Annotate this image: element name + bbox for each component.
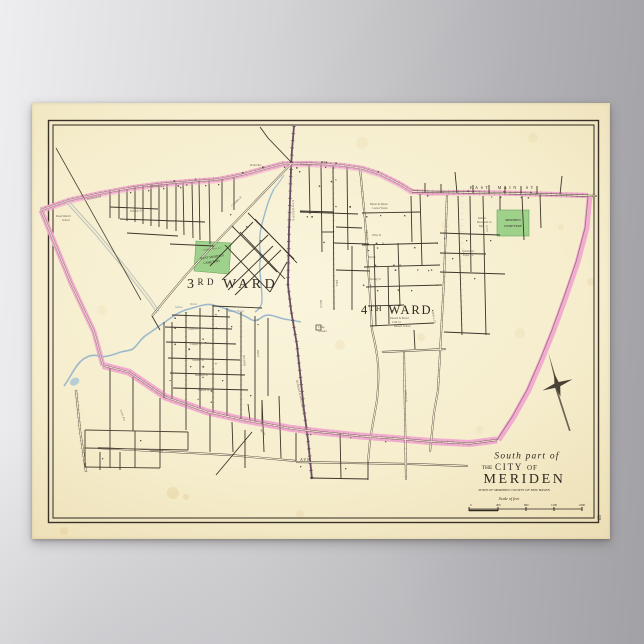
svg-text:Meriden Pk: Meriden Pk [150,450,164,453]
svg-text:Myrtle: Myrtle [368,256,376,259]
svg-text:MERIDEN: MERIDEN [505,218,521,222]
svg-text:Paper Co: Paper Co [463,254,474,257]
svg-text:CEMETERY: CEMETERY [504,224,523,228]
svg-text:Harbor Brook: Harbor Brook [227,310,245,313]
svg-text:Corner Works: Corner Works [372,207,388,210]
svg-text:FIRST: FIRST [256,350,260,358]
svg-text:Russell School: Russell School [394,325,411,328]
svg-text:0: 0 [470,503,472,507]
svg-text:TOWN OF MERIDEN COUNTY OF NEW: TOWN OF MERIDEN COUNTY OF NEW HAVEN [478,488,550,492]
svg-text:Hanover St: Hanover St [195,374,208,377]
svg-text:Hillside Ave: Hillside Ave [130,209,145,213]
svg-text:S BROAD: S BROAD [404,390,407,402]
svg-text:Ground: Ground [318,330,327,333]
svg-text:1600: 1600 [579,503,586,507]
svg-text:Columbia St: Columbia St [231,195,243,207]
svg-text:Rubber: Rubber [478,217,486,220]
svg-text:Lewis Ave: Lewis Ave [119,409,126,422]
svg-text:3RDWARD: 3RDWARD [187,277,278,292]
svg-text:Prattsville: Prattsville [250,164,262,167]
svg-text:Griswold: Griswold [188,327,199,331]
svg-text:Grove: Grove [485,225,489,233]
svg-text:400: 400 [496,503,501,507]
svg-text:Summer: Summer [166,220,176,223]
svg-text:THE: THE [482,465,493,471]
svg-text:Quinnipiac: Quinnipiac [462,250,475,253]
svg-text:800: 800 [524,503,529,507]
svg-text:Road District: Road District [56,215,71,218]
svg-text:Cooper St: Cooper St [190,343,201,346]
svg-text:65: 65 [598,515,603,521]
svg-text:1200: 1200 [551,503,558,507]
svg-text:N Colony: N Colony [300,163,312,167]
svg-text:SECOND: SECOND [242,355,246,366]
svg-text:Spring St: Spring St [370,278,381,281]
svg-text:Olive St: Olive St [372,234,381,237]
svg-text:N Y N H & H R R: N Y N H & H R R [291,200,295,221]
svg-text:Butler & Marks: Butler & Marks [370,203,388,206]
svg-text:Sodom: Sodom [175,306,183,309]
svg-text:South part of: South part of [494,451,559,462]
svg-text:MERIDEN: MERIDEN [484,472,566,487]
svg-text:Veteran St: Veteran St [192,359,204,362]
svg-text:OF: OF [527,464,538,472]
svg-text:Bookbind Co: Bookbind Co [477,221,493,224]
svg-text:Johnson Ave: Johnson Ave [150,185,165,188]
svg-text:CITY: CITY [495,462,523,472]
svg-text:Mill St: Mill St [319,300,322,308]
svg-text:AVE: AVE [300,457,311,462]
svg-text:School: School [62,219,70,222]
svg-text:Berlin: Berlin [259,429,266,437]
svg-text:Mfg: Mfg [479,225,484,228]
svg-text:Camp: Camp [318,326,325,329]
svg-text:EAST MAIN ST: EAST MAIN ST [470,185,536,190]
svg-text:Crill Co: Crill Co [392,321,402,324]
svg-text:Russell & Board: Russell & Board [390,317,409,320]
svg-text:Warren St: Warren St [198,389,209,392]
svg-text:MILL: MILL [335,280,338,287]
svg-text:Scale of feet: Scale of feet [499,496,520,501]
svg-text:Brook: Brook [190,303,197,306]
